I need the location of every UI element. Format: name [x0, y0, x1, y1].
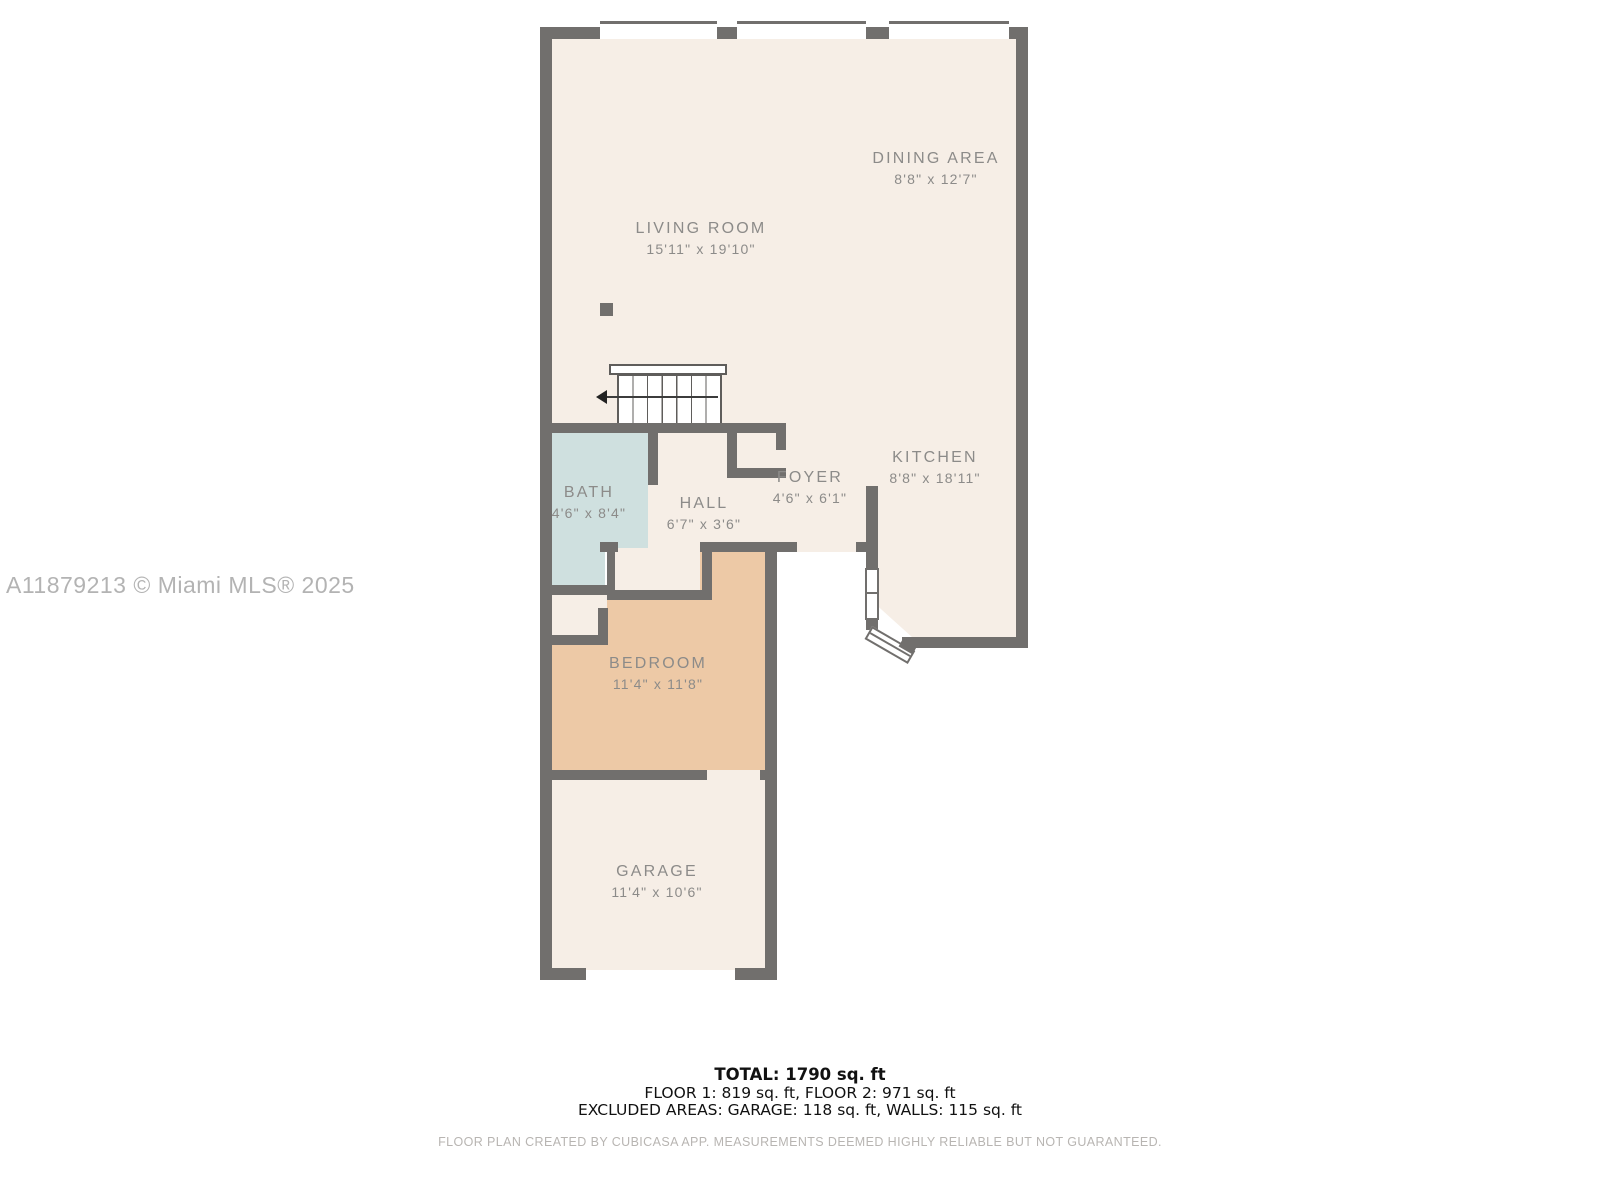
wall-kitchen-bottom [902, 637, 1028, 648]
room-dims: 4'6" x 6'1" [773, 490, 847, 506]
room-label-bath: BATH 4'6" x 8'4" [552, 484, 626, 521]
wall-under-stairs [552, 423, 786, 433]
room-name: BEDROOM [609, 655, 707, 673]
window-frame-line [889, 21, 1009, 24]
floor-areas-text: FLOOR 1: 819 sq. ft, FLOOR 2: 971 sq. ft [0, 1085, 1600, 1103]
wall-stair-closet-right [776, 433, 786, 450]
window-icon [865, 568, 879, 620]
floor-plan: LIVING ROOM 15'11" x 19'10" DINING AREA … [0, 0, 1600, 1200]
wall-bedroom-right-corner [765, 542, 797, 552]
total-area-text: TOTAL: 1790 sq. ft [0, 1066, 1600, 1084]
excluded-areas-text: EXCLUDED AREAS: GARAGE: 118 sq. ft, WALL… [0, 1102, 1600, 1120]
room-name: BATH [552, 484, 626, 502]
room-name: HALL [667, 495, 741, 513]
window-frame-line [737, 21, 866, 24]
room-name: KITCHEN [889, 449, 980, 467]
wall-bath-right [648, 433, 658, 485]
wall-kitchen-left [866, 486, 878, 568]
room-name: GARAGE [611, 863, 702, 881]
bedroom-garage-door-gap [707, 770, 760, 780]
room-dims: 4'6" x 8'4" [552, 505, 626, 521]
room-dims: 6'7" x 3'6" [667, 516, 741, 532]
wall-garage-bottom-right [735, 968, 777, 980]
room-name: FOYER [773, 469, 847, 487]
room-dims: 11'4" x 10'6" [611, 884, 702, 900]
room-name: LIVING ROOM [636, 220, 767, 238]
wall-hall-closet-bottom [607, 590, 712, 600]
room-name: DINING AREA [872, 150, 999, 168]
room-label-kitchen: KITCHEN 8'8" x 18'11" [889, 449, 980, 486]
wall-left-outer [540, 27, 552, 980]
wall-bath-bottom [552, 585, 608, 595]
wall-bedroom-right [765, 542, 777, 980]
column-marker [600, 303, 613, 316]
window-icon [600, 27, 717, 39]
kitchen-floor-south [878, 552, 1016, 637]
room-dims: 11'4" x 11'8" [609, 676, 707, 692]
window-icon [889, 27, 1009, 39]
room-label-dining: DINING AREA 8'8" x 12'7" [872, 150, 999, 187]
room-dims: 8'8" x 12'7" [872, 171, 999, 187]
stairs [617, 374, 722, 425]
wall-hall-closet-right [702, 552, 712, 600]
room-label-living: LIVING ROOM 15'11" x 19'10" [636, 220, 767, 257]
bedroom-floor [552, 645, 607, 780]
window-frame-line [867, 592, 877, 594]
room-label-foyer: FOYER 4'6" x 6'1" [773, 469, 847, 506]
wall-garage-bottom-left [540, 968, 586, 980]
room-label-garage: GARAGE 11'4" x 10'6" [611, 863, 702, 900]
stairs-direction-arrow [596, 390, 607, 404]
window-icon [737, 27, 866, 39]
wall-hall-closet-left [607, 552, 615, 590]
wall-hall-bottom [600, 542, 618, 552]
area-summary: TOTAL: 1790 sq. ft FLOOR 1: 819 sq. ft, … [0, 1066, 1600, 1120]
wall-bedroom-garage-divider [552, 770, 707, 780]
room-label-hall: HALL 6'7" x 3'6" [667, 495, 741, 532]
wall-right-outer [1016, 27, 1028, 648]
stairs-direction-line [606, 396, 718, 398]
room-dims: 8'8" x 18'11" [889, 470, 980, 486]
wall-foyer-stub [856, 542, 878, 552]
mls-watermark: A11879213 © Miami MLS® 2025 [6, 572, 355, 599]
wall-closet-bottom [552, 635, 608, 645]
room-dims: 15'11" x 19'10" [636, 241, 767, 257]
footer-disclaimer: FLOOR PLAN CREATED BY CUBICASA APP. MEAS… [0, 1135, 1600, 1149]
wall-bedroom-garage-divider [760, 770, 777, 780]
room-label-bedroom: BEDROOM 11'4" x 11'8" [609, 655, 707, 692]
window-frame-line [600, 21, 717, 24]
